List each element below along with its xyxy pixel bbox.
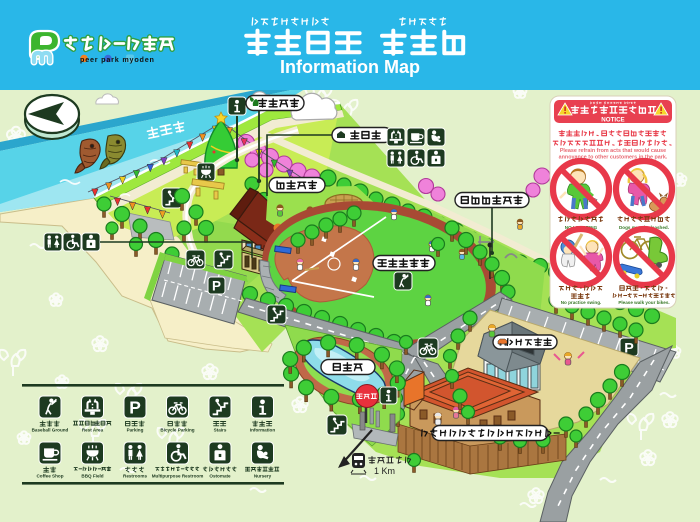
svg-text:Nursery: Nursery — [254, 474, 272, 479]
svg-text:1 Km: 1 Km — [374, 466, 395, 476]
svg-text:Ostomate: Ostomate — [209, 474, 231, 479]
svg-text:P: P — [212, 278, 221, 293]
svg-text:Information: Information — [250, 428, 275, 433]
svg-text:Please walk your bikes.: Please walk your bikes. — [618, 300, 669, 305]
svg-text:Please refrain from acts that: Please refrain from acts that would caus… — [560, 148, 666, 154]
svg-text:Stairs: Stairs — [214, 428, 227, 433]
svg-text:Bicycle Parking: Bicycle Parking — [160, 428, 194, 433]
svg-text:No practice swing.: No practice swing. — [561, 300, 602, 305]
svg-text:Parking: Parking — [127, 428, 144, 433]
svg-text:Information Map: Information Map — [280, 57, 420, 77]
svg-text:P: P — [129, 397, 141, 417]
svg-text:peer park myoden: peer park myoden — [80, 55, 155, 64]
svg-text:NOTICE: NOTICE — [601, 117, 624, 124]
svg-text:Coffee Shop: Coffee Shop — [36, 474, 63, 479]
svg-text:Baseball Ground: Baseball Ground — [32, 428, 69, 433]
svg-text:Multipurpose Restroom: Multipurpose Restroom — [152, 474, 204, 479]
svg-text:Rest Area: Rest Area — [82, 428, 104, 433]
svg-text:Restrooms: Restrooms — [123, 474, 147, 479]
svg-text:BBQ Field: BBQ Field — [81, 474, 103, 479]
